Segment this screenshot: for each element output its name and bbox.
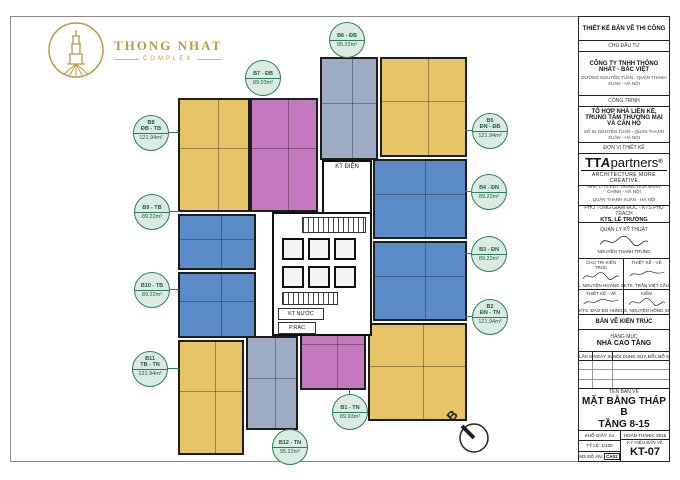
rev-col-ngay-sua: NGÀY SỬA xyxy=(593,352,613,360)
unit-label-B7: B7 - ĐB89.93m² xyxy=(245,60,281,96)
drawing-name-label: TÊN BẢN VẼ xyxy=(609,389,639,395)
revision-row xyxy=(579,380,669,388)
unit-label-B10: B10 - TB89.22m² xyxy=(134,272,170,308)
unit-label-B12: B12 - TN95.22m² xyxy=(272,429,308,465)
unit-B6 xyxy=(320,57,378,160)
drawing-name-block: TÊN BẢN VẼ MẶT BẰNG THÁP B TẦNG 8-15 xyxy=(579,389,669,431)
unit-B3 xyxy=(373,241,467,321)
sig-3-name: KTS. ĐÀO ĐỖ HÙNG xyxy=(579,308,623,313)
tech-manager-block: QUẢN LÝ KỸ THUẬT NGUYỄN THANH TRUNG xyxy=(579,223,669,259)
client-address: ĐƯỜNG NGUYỄN TUÂN - QUẬN THANH XUÂN - HÀ… xyxy=(581,75,667,86)
project-address: SỐ 82 NGUYỄN TUÂN - QUẬN THANH XUÂN - HÀ… xyxy=(581,129,667,140)
completion-date: HOÀN THÀNH: 2016 xyxy=(621,431,669,440)
client-block: CÔNG TY TNHH THỐNG NHẤT - BẮC VIỆT ĐƯỜNG… xyxy=(579,52,669,96)
category-block: HẠNG MỤC NHÀ CAO TẦNG xyxy=(579,330,669,352)
unit-label-B6: B6 - ĐB95.22m² xyxy=(329,22,365,58)
signature-grid: CHỦ TRÌ KIẾN TRÚC KTS. NGUYỄN HOÀNG SƠN … xyxy=(579,259,669,315)
elevator-4 xyxy=(282,266,304,288)
drawing-number: KT-07 xyxy=(621,446,669,459)
tta-logo: TTApartners® xyxy=(585,156,662,169)
signature xyxy=(581,270,621,282)
north-arrow-icon: B xyxy=(436,398,500,462)
kt-dien-label: KT ĐIỆN xyxy=(335,164,359,170)
signature xyxy=(597,233,651,249)
drawing-name-2: TẦNG 8-15 xyxy=(598,419,649,430)
building-core: KT NƯỚC P.RÁC xyxy=(272,212,372,336)
unit-B7 xyxy=(250,98,318,212)
sig-cell-2: THIẾT KẾ - VẼ KTS. TRẦN VIỆT CẦU xyxy=(624,259,669,290)
elevator-2 xyxy=(308,238,330,260)
sig-cell-1: CHỦ TRÌ KIẾN TRÚC KTS. NGUYỄN HOÀNG SƠN xyxy=(579,259,624,290)
elevator-3 xyxy=(334,238,356,260)
project-code: MS ĐỒ ÁN: CA02 xyxy=(579,452,620,461)
unit-label-B1: B1 - TN89.93m² xyxy=(332,394,368,430)
revision-header: LẦN SỐ NGÀY SỬA NỘI DUNG SỬA ĐỔI, BỔ SUN… xyxy=(579,352,669,361)
signature xyxy=(627,296,667,308)
signature xyxy=(627,268,667,280)
core-shaft-electric: KT ĐIỆN xyxy=(322,160,372,214)
project-block: TỔ HỢP NHÀ LIỀN KỀ, TRUNG TÂM THƯƠNG MẠI… xyxy=(579,107,669,143)
tta-tagline: ARCHITECTURE MORE CREATIVE xyxy=(581,170,667,184)
unit-label-B2: B2ĐN - TN121.94m² xyxy=(472,299,508,335)
unit-B9 xyxy=(178,214,256,270)
sig-3-label: THIẾT KẾ - VẼ xyxy=(586,291,616,296)
stairs-top xyxy=(302,217,366,233)
elevator-1 xyxy=(282,238,304,260)
unit-label-B8: B8ĐB - TB121.94m² xyxy=(133,115,169,151)
client-label: CHỦ ĐẦU TƯ xyxy=(579,41,669,52)
unit-label-B5: B5ĐN - ĐB121.94m² xyxy=(472,113,508,149)
stage-title: THIẾT KẾ BẢN VẼ THI CÔNG xyxy=(579,17,669,41)
unit-B10 xyxy=(178,272,256,338)
sig-4-label: KIỂM xyxy=(641,291,652,296)
designer-address-2: QUẬN THANH XUÂN - HÀ NỘI xyxy=(593,197,656,203)
elevator-6 xyxy=(334,266,356,288)
leader-b11 xyxy=(168,368,179,369)
tech-manager-name: NGUYỄN THANH TRUNG xyxy=(597,249,650,254)
revision-table: LẦN SỐ NGÀY SỬA NỘI DUNG SỬA ĐỔI, BỔ SUN… xyxy=(579,352,669,389)
unit-label-B11: B11TB - TN121.94m² xyxy=(132,351,168,387)
leader-b10 xyxy=(170,289,179,290)
designer-logo: TTApartners® ARCHITECTURE MORE CREATIVE xyxy=(579,154,669,186)
rev-col-noi-dung: NỘI DUNG SỬA ĐỔI, BỔ SUNG xyxy=(613,352,669,360)
unit-B4 xyxy=(373,159,467,239)
drawing-name-1: MẶT BẰNG THÁP B xyxy=(581,396,667,418)
unit-B11 xyxy=(178,340,244,455)
client-name: CÔNG TY TNHH THỐNG NHẤT - BẮC VIỆT xyxy=(581,61,667,73)
unit-B8 xyxy=(178,98,250,212)
paper-size: KHỔ GIẤY: A4 xyxy=(579,431,620,441)
drawing-sheet: THONG NHAT COMPLEX KT ĐIỆN xyxy=(0,0,680,480)
leader-b9 xyxy=(170,211,179,212)
unit-label-B4: B4 - ĐN89.22m² xyxy=(471,174,507,210)
sig-cell-4: KIỂM KTS. NGUYỄN HỒNG SƠN xyxy=(624,290,669,315)
unit-B12 xyxy=(246,336,298,430)
revision-row xyxy=(579,361,669,370)
discipline-title: BẢN VẼ KIẾN TRÚC xyxy=(579,315,669,330)
sig-1-name: KTS. NGUYỄN HOÀNG SƠN xyxy=(579,283,624,288)
project-label: CÔNG TRÌNH xyxy=(579,96,669,107)
sig-cell-3: THIẾT KẾ - VẼ KTS. ĐÀO ĐỖ HÙNG xyxy=(579,290,624,315)
leader-b8 xyxy=(169,132,179,133)
p-rac-label: P.RÁC xyxy=(278,322,316,334)
drawing-number-block: KÝ HIỆU BẢN VẼ KT-07 xyxy=(621,440,669,459)
designer-address: NHÀ 17T5 KĐT TRUNG HÒA NHÂN CHÍNH - HÀ N… xyxy=(579,186,669,206)
drawing-info-grid: KHỔ GIẤY: A4 TỶ LỆ: 1/100 MS ĐỒ ÁN: CA02… xyxy=(579,431,669,461)
category-value: NHÀ CAO TẦNG xyxy=(597,340,651,347)
signature xyxy=(581,296,621,308)
sig-4-name: KTS. NGUYỄN HỒNG SƠN xyxy=(624,308,669,313)
drawing-info-right: HOÀN THÀNH: 2016 KÝ HIỆU BẢN VẼ KT-07 xyxy=(621,431,669,461)
unit-B5 xyxy=(380,57,467,157)
unit-label-B3: B3 - ĐN89.22m² xyxy=(471,236,507,272)
sig-1-label: CHỦ TRÌ KIẾN TRÚC xyxy=(580,260,622,270)
designer-address-1: NHÀ 17T5 KĐT TRUNG HÒA NHÂN CHÍNH - HÀ N… xyxy=(581,186,667,195)
rev-col-lan-so: LẦN SỐ xyxy=(579,352,593,360)
director-label: PHÓ TỔNG GIÁM ĐỐC - KTS PHỤ TRÁCH xyxy=(581,206,667,217)
north-letter: B xyxy=(444,407,461,424)
elevator-5 xyxy=(308,266,330,288)
designer-label: ĐƠN VỊ THIẾT KẾ xyxy=(579,143,669,154)
kt-nuoc-label: KT NƯỚC xyxy=(278,308,324,320)
scale: TỶ LỆ: 1/100 xyxy=(579,441,620,451)
revision-row xyxy=(579,370,669,379)
drawing-info-left: KHỔ GIẤY: A4 TỶ LỆ: 1/100 MS ĐỒ ÁN: CA02 xyxy=(579,431,621,461)
stairs-bottom xyxy=(282,292,338,305)
title-block: THIẾT KẾ BẢN VẼ THI CÔNG CHỦ ĐẦU TƯ CÔNG… xyxy=(578,16,670,462)
director-block: PHÓ TỔNG GIÁM ĐỐC - KTS PHỤ TRÁCH KTS. L… xyxy=(579,206,669,223)
unit-label-B9: B9 - TB89.22m² xyxy=(134,194,170,230)
project-name-2: TRUNG TÂM THƯƠNG MẠI VÀ CĂN HỘ xyxy=(581,115,667,127)
sig-2-name: KTS. TRẦN VIỆT CẦU xyxy=(624,283,669,288)
sig-2-label: THIẾT KẾ - VẼ xyxy=(631,260,661,265)
